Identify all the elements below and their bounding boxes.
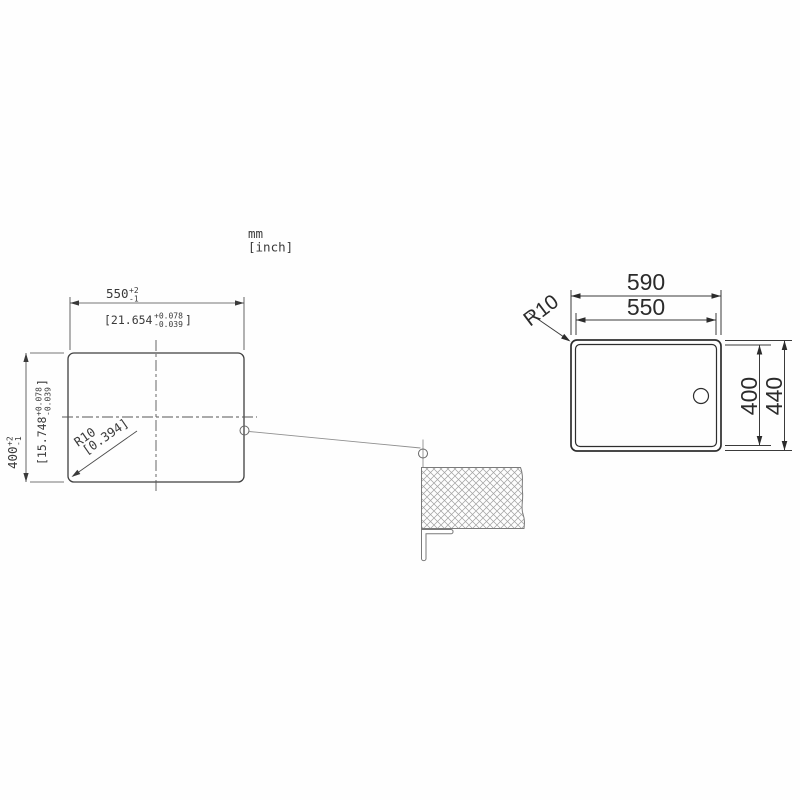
sink-top-view: 590 550 R10 400 [519,269,792,451]
dim-arrow [23,353,28,362]
cutout-view: 550 +2 -1 [21.654 +0.078 -0.039 ] 400 +2… [5,286,257,491]
cutout-width-inch-bracket: ] [185,313,192,327]
leader-arrow [70,470,80,479]
dim-arrow [23,473,28,482]
drawing-canvas: mm [inch] 550 +2 -1 [21.654 +0.078 -0.03… [0,0,800,800]
sink-inner-width-dimension: 550 [576,294,716,335]
cutout-width-mm-tol-dn: -1 [129,295,139,304]
unit-note: mm [inch] [248,226,293,255]
cutout-height-dimension: 400 +2 -1 [15.748 +0.078 -0.039 ] [5,353,64,482]
drain-hole [694,389,709,404]
worktop-section-hatch [422,468,525,529]
cutout-height-inch-tol-dn: -0.039 [44,387,53,416]
sink-inner-width-value: 550 [627,294,665,320]
sink-inner-outline [576,345,717,447]
sink-outer-outline [571,340,721,451]
sink-radius-callout: R10 [519,290,572,344]
section-detail [419,440,525,561]
dim-arrow [712,293,722,299]
cutout-height-mm: 400 [5,446,20,469]
cutout-height-inch-tol-up: +0.078 [35,387,44,416]
section-reference-leader [249,432,421,449]
dim-arrow [70,300,79,305]
cutout-height-inch: [15.748 [35,416,49,465]
dim-arrow [782,441,788,451]
sink-outer-height-value: 440 [761,377,787,415]
dim-arrow [571,293,581,299]
sink-radius-value: R10 [519,290,563,331]
sink-outer-width-value: 590 [627,269,665,295]
leader-arrow [561,334,572,344]
cutout-width-dimension: 550 +2 -1 [21.654 +0.078 -0.039 ] [70,286,244,350]
dim-arrow [235,300,244,305]
sink-inner-height-value: 400 [736,377,762,415]
cutout-height-inch-bracket: ] [35,379,49,386]
cutout-width-inch: [21.654 [104,313,153,327]
cutout-height-mm-tol-dn: -1 [14,436,23,446]
technical-drawing: mm [inch] 550 +2 -1 [21.654 +0.078 -0.03… [0,0,800,800]
unit-inch-label: [inch] [248,240,293,255]
cutout-width-mm: 550 [106,286,129,301]
dim-arrow [782,341,788,351]
sink-rim-profile [422,530,454,561]
dim-arrow [576,317,586,323]
cutout-width-inch-tol-dn: -0.039 [154,320,183,329]
dim-arrow [707,317,717,323]
dim-arrow [757,345,763,355]
dim-arrow [757,436,763,446]
